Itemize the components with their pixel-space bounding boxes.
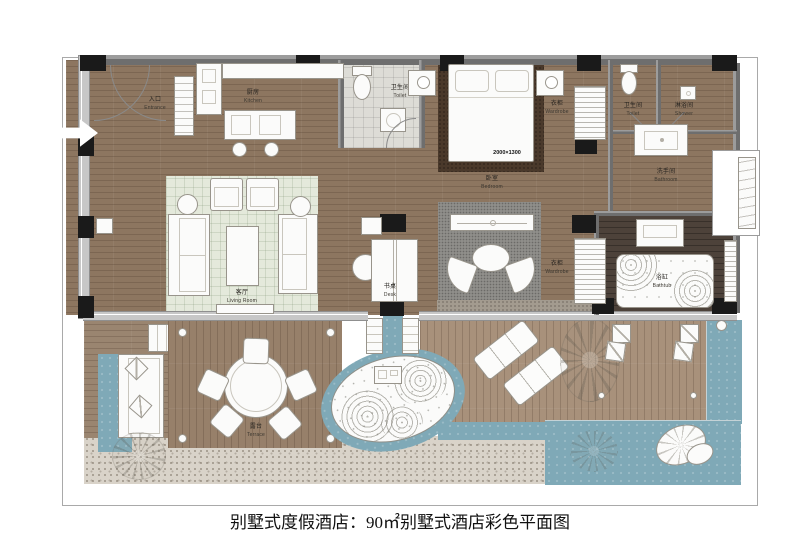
bath-niche bbox=[636, 219, 684, 247]
dining-table-ring bbox=[230, 360, 282, 412]
wall-top bbox=[83, 55, 737, 65]
step bbox=[402, 318, 419, 354]
room-label-wardrobe-bedroom: 衣柜 Wardrobe bbox=[545, 101, 568, 115]
room-label-kitchen: 厨房 Kitchen bbox=[244, 90, 262, 104]
label-en: Wardrobe bbox=[545, 109, 568, 115]
sliding-door-right bbox=[419, 311, 737, 321]
desk-shelf bbox=[361, 217, 382, 235]
faucet-dot bbox=[660, 138, 664, 142]
wardrobe-cabinet bbox=[574, 86, 606, 140]
pool-right-arm bbox=[706, 320, 742, 424]
bar-stool bbox=[232, 142, 247, 157]
deck-light bbox=[716, 320, 727, 331]
floor-cushion bbox=[605, 341, 626, 362]
plant-bottom-left bbox=[112, 432, 166, 480]
column bbox=[380, 214, 406, 232]
room-label-wardrobe-hall: 衣柜 Wardrobe bbox=[545, 261, 568, 275]
deck-light bbox=[178, 434, 187, 443]
wall-toilet-shower-divider bbox=[656, 60, 661, 132]
label-zh: 洗手间 bbox=[654, 169, 677, 177]
column-side-box bbox=[96, 218, 113, 234]
column bbox=[78, 216, 94, 238]
oven-unit bbox=[202, 90, 216, 104]
bathtub-ripple bbox=[673, 269, 714, 308]
shower-drain bbox=[686, 91, 691, 96]
tv-bench bbox=[216, 304, 274, 314]
tv-console bbox=[450, 214, 534, 231]
label-zh: 卫生间 bbox=[391, 85, 410, 93]
deck-light bbox=[326, 328, 335, 337]
floor-cushion bbox=[673, 341, 694, 362]
console-dot bbox=[490, 220, 496, 226]
label-en: Bedroom bbox=[481, 184, 503, 190]
side-table bbox=[177, 194, 198, 215]
label-zh: 露台 bbox=[247, 424, 265, 432]
dining-chair bbox=[243, 338, 270, 365]
wall-right-upper bbox=[733, 63, 740, 153]
tall-cabinet bbox=[196, 63, 222, 115]
blanket-fold bbox=[449, 97, 533, 98]
bay-planter-box bbox=[738, 157, 756, 229]
wardrobe-cabinet bbox=[574, 238, 606, 304]
shower-head bbox=[680, 86, 696, 100]
bath-niche-basin bbox=[643, 225, 677, 238]
column bbox=[575, 138, 597, 154]
armchair bbox=[210, 178, 243, 211]
sofa bbox=[278, 214, 318, 294]
label-en: Entrance bbox=[144, 105, 166, 111]
hall-closet bbox=[174, 76, 194, 136]
deck-light bbox=[598, 392, 605, 399]
coffee-table bbox=[226, 226, 259, 286]
island-hob bbox=[259, 115, 281, 135]
island-sink bbox=[231, 115, 251, 135]
pillow bbox=[455, 70, 489, 92]
pool-equipment-detail bbox=[390, 370, 398, 376]
toilet-bowl bbox=[353, 74, 371, 100]
bedside-lamp bbox=[417, 76, 430, 89]
label-zh: 入口 bbox=[144, 97, 166, 105]
plan-caption: 别墅式度假酒店：90㎡别墅式酒店彩色平面图 bbox=[0, 508, 800, 533]
wall-bedroom-bathroom bbox=[608, 60, 613, 215]
column bbox=[712, 55, 737, 71]
room-label-shower: 淋浴间 Shower bbox=[675, 103, 694, 117]
room-label-bathtub: 浴缸 Bathtub bbox=[653, 275, 672, 289]
column bbox=[577, 55, 601, 71]
label-zh: 衣柜 bbox=[545, 261, 568, 269]
label-zh: 书桌 bbox=[384, 284, 396, 292]
label-en: Shower bbox=[675, 111, 694, 117]
bed bbox=[448, 64, 534, 162]
label-en: Kitchen bbox=[244, 98, 262, 104]
label-en: Toilet bbox=[391, 93, 410, 99]
step bbox=[366, 318, 383, 354]
kitchen-counter bbox=[222, 63, 344, 79]
armchair-seat bbox=[250, 187, 275, 207]
room-label-desk: 书桌 Desk bbox=[384, 284, 396, 298]
room-label-entrance: 入口 Entrance bbox=[144, 97, 166, 111]
bedside-lamp bbox=[545, 76, 558, 89]
room-label-toilet-main: 卫生间 Toilet bbox=[391, 85, 410, 99]
pool-equipment-detail bbox=[378, 370, 387, 379]
room-label-terrace: 露台 Terrace bbox=[247, 424, 265, 438]
kitchen-island bbox=[224, 110, 296, 140]
armchair bbox=[246, 178, 279, 211]
vanity bbox=[634, 124, 688, 156]
sofa-cushion-split bbox=[282, 254, 307, 255]
deck-light bbox=[690, 392, 697, 399]
label-zh: 淋浴间 bbox=[675, 103, 694, 111]
sofa-cushion-split bbox=[179, 255, 206, 256]
floor-cushion bbox=[680, 324, 699, 343]
label-en: Toilet bbox=[624, 111, 643, 117]
room-label-bedroom: 卧室 Bedroom bbox=[481, 176, 503, 190]
column bbox=[572, 215, 596, 233]
bar-stool bbox=[264, 142, 279, 157]
pillow bbox=[495, 70, 529, 92]
armchair-seat bbox=[214, 187, 239, 207]
towel-radiator bbox=[724, 240, 737, 302]
label-en: Living Room bbox=[227, 298, 257, 304]
bed-size-annotation: 2000×1300 bbox=[493, 150, 521, 156]
window-wall-left bbox=[78, 55, 90, 319]
side-table bbox=[290, 196, 311, 217]
floor-cushion bbox=[612, 324, 631, 343]
sofa bbox=[168, 214, 210, 296]
label-zh: 厨房 bbox=[244, 90, 262, 98]
toilet-bowl bbox=[621, 71, 637, 95]
label-zh: 卫生间 bbox=[624, 103, 643, 111]
label-zh: 衣柜 bbox=[545, 101, 568, 109]
label-en: Wardrobe bbox=[545, 269, 568, 275]
pool-equipment-box bbox=[374, 366, 402, 384]
floorplan-canvas: 入口 Entrance 厨房 Kitchen 卫生间 Toilet 2000×1… bbox=[0, 0, 800, 553]
deck-light bbox=[178, 328, 187, 337]
pool-channel-arm bbox=[438, 422, 560, 440]
label-zh: 卧室 bbox=[481, 176, 503, 184]
label-zh: 浴缸 bbox=[653, 275, 672, 283]
room-label-bathroom: 洗手间 Bathroom bbox=[654, 169, 677, 183]
label-zh: 客厅 bbox=[227, 290, 257, 298]
label-en: Bathtub bbox=[653, 283, 672, 289]
room-label-living: 客厅 Living Room bbox=[227, 290, 257, 304]
room-label-toilet-ensuite: 卫生间 Toilet bbox=[624, 103, 643, 117]
label-en: Terrace bbox=[247, 432, 265, 438]
oven-unit bbox=[202, 69, 216, 83]
column bbox=[78, 296, 94, 318]
label-en: Desk bbox=[384, 292, 396, 298]
plant-in-pool bbox=[570, 430, 618, 472]
label-en: Bathroom bbox=[654, 177, 677, 183]
